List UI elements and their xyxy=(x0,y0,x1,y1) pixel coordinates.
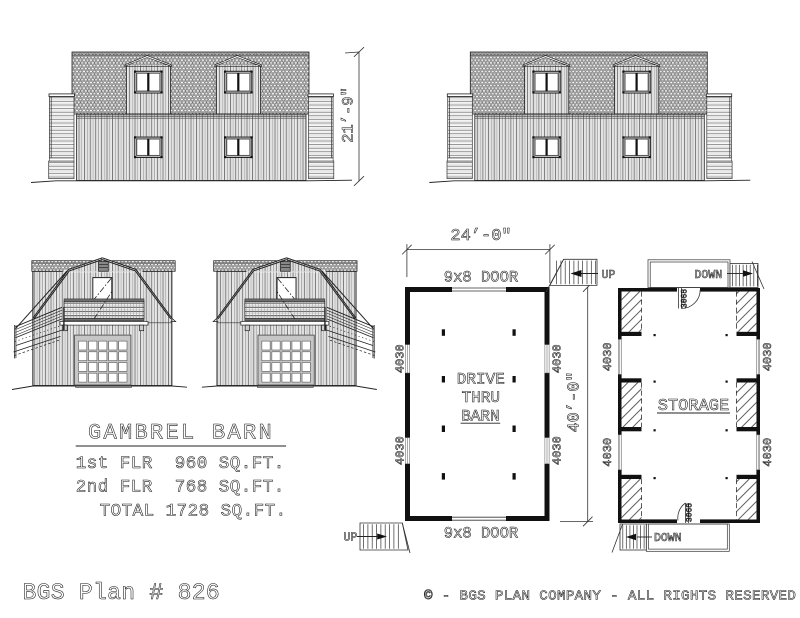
svg-text:GAMBREL BARN: GAMBREL BARN xyxy=(88,421,274,446)
svg-text:3068: 3068 xyxy=(686,503,695,522)
svg-text:© - BGS PLAN COMPANY - ALL RIG: © - BGS PLAN COMPANY - ALL RIGHTS RESERV… xyxy=(424,589,796,605)
svg-text:4030: 4030 xyxy=(394,344,408,373)
svg-text:4030: 4030 xyxy=(551,344,565,373)
svg-text:DOWN: DOWN xyxy=(695,269,723,282)
svg-text:4030: 4030 xyxy=(394,436,408,465)
svg-text:DRIVE: DRIVE xyxy=(457,371,505,389)
svg-text:4030: 4030 xyxy=(551,436,565,465)
svg-text:4030: 4030 xyxy=(761,438,775,467)
svg-text:9x8 DOOR: 9x8 DOOR xyxy=(444,269,518,287)
svg-text:4030: 4030 xyxy=(761,342,775,371)
svg-text:24’-0": 24’-0" xyxy=(450,227,511,246)
svg-text:DOWN: DOWN xyxy=(654,532,682,545)
svg-text:40’-0": 40’-0" xyxy=(566,371,585,432)
svg-text:21’-9": 21’-9" xyxy=(340,87,358,143)
svg-text:TOTAL 1728 SQ.FT.: TOTAL 1728 SQ.FT. xyxy=(100,502,287,522)
svg-text:4030: 4030 xyxy=(601,438,615,467)
svg-text:BGS Plan # 826: BGS Plan # 826 xyxy=(23,580,220,606)
svg-text:UP: UP xyxy=(602,269,616,282)
svg-text:3068: 3068 xyxy=(680,289,689,308)
svg-text:1st FLR 960 SQ.FT.: 1st FLR 960 SQ.FT. xyxy=(76,454,285,474)
svg-text:9x8 DOOR: 9x8 DOOR xyxy=(444,525,518,543)
svg-text:2nd FLR 768 SQ.FT.: 2nd FLR 768 SQ.FT. xyxy=(76,478,285,498)
svg-text:4030: 4030 xyxy=(601,342,615,371)
svg-text:THRU: THRU xyxy=(462,389,500,407)
svg-text:UP: UP xyxy=(344,532,358,545)
